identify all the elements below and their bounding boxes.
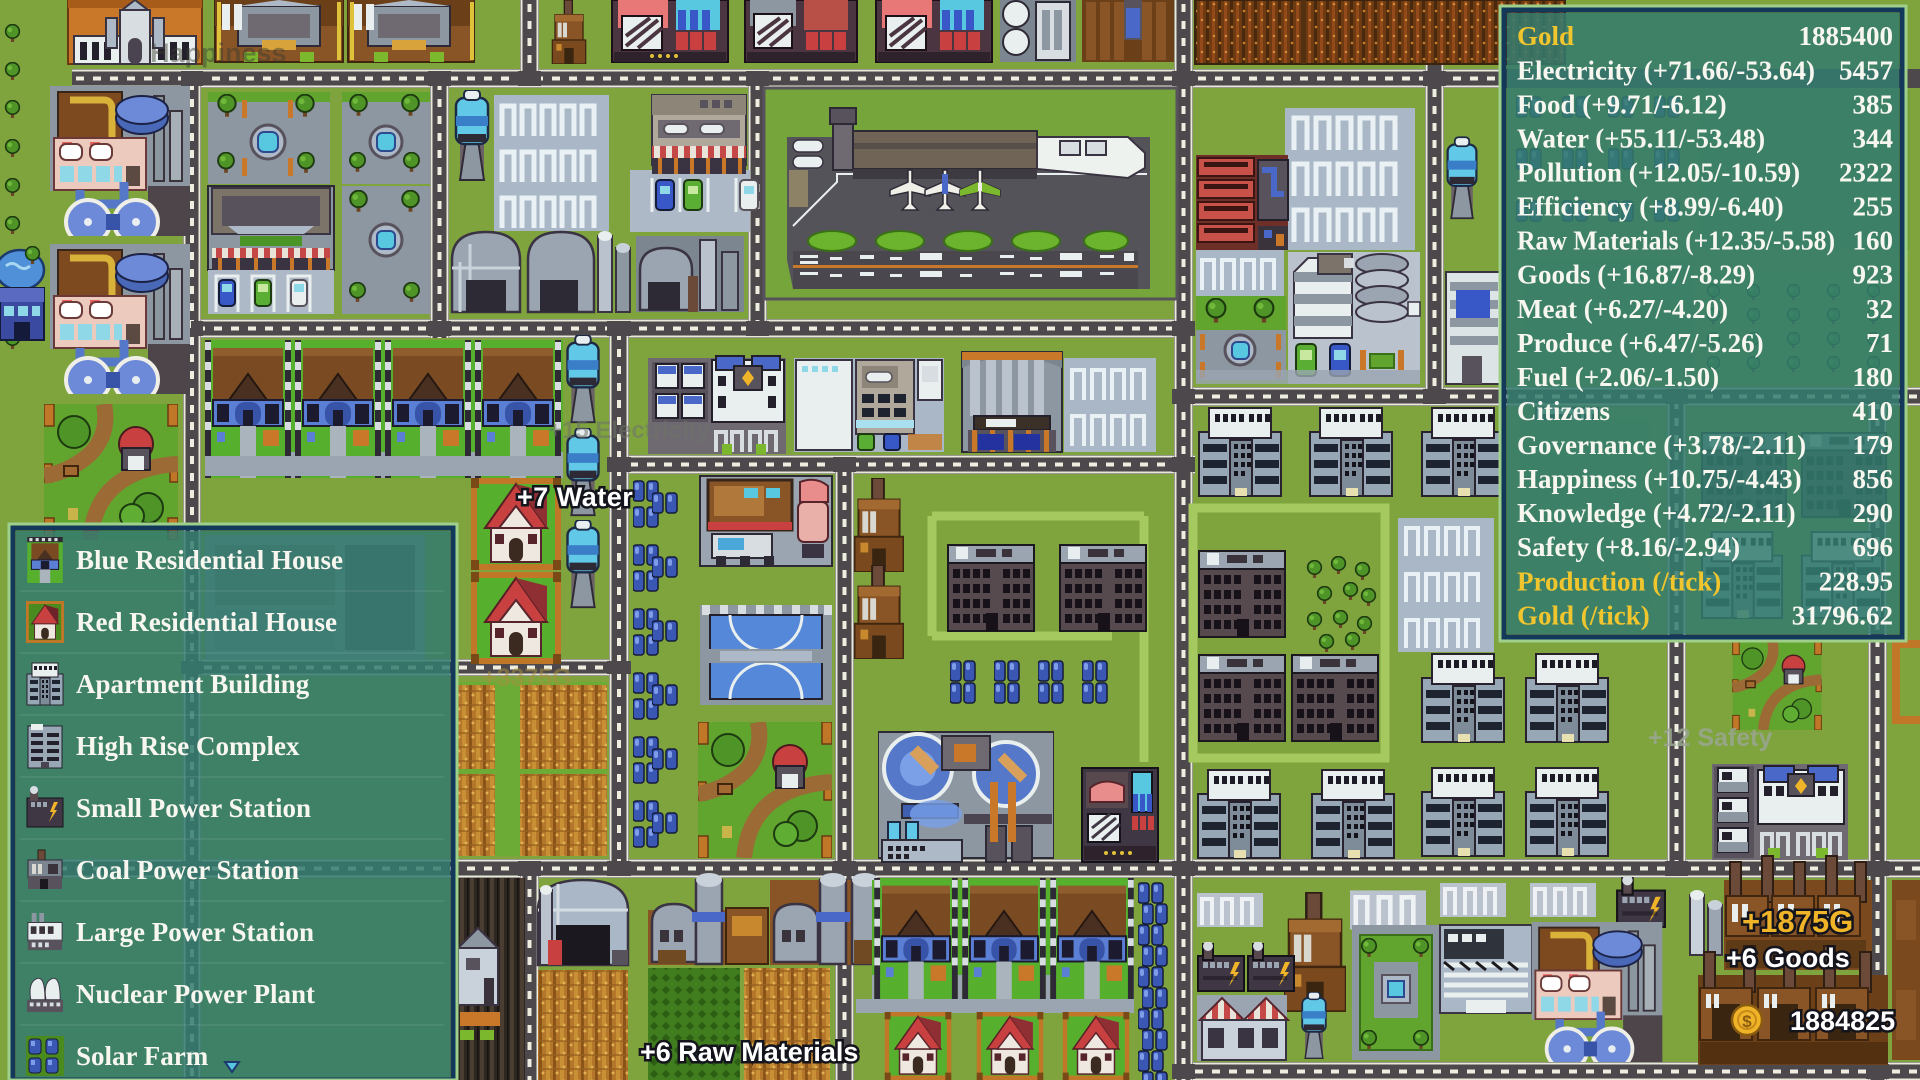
svg-text:Blue Residential House: Blue Residential House [76, 545, 343, 575]
svg-text:+15 Electricity: +15 Electricity [548, 417, 711, 444]
svg-text:Production (/tick): Production (/tick) [1517, 566, 1721, 596]
svg-text:Raw Materials (+12.35/-5.58): Raw Materials (+12.35/-5.58) [1517, 226, 1835, 256]
svg-text:5457: 5457 [1839, 55, 1893, 85]
svg-text:Water (+55.11/-53.48): Water (+55.11/-53.48) [1517, 123, 1765, 153]
svg-text:$: $ [1742, 1012, 1752, 1031]
svg-text:71: 71 [1866, 328, 1893, 358]
svg-text:Pollution (+12.05/-10.59): Pollution (+12.05/-10.59) [1517, 158, 1800, 188]
svg-text:160: 160 [1853, 226, 1894, 256]
svg-text:Efficiency (+8.99/-6.40): Efficiency (+8.99/-6.40) [1517, 192, 1784, 222]
svg-text:696: 696 [1853, 532, 1894, 562]
svg-text:2322: 2322 [1839, 158, 1893, 188]
svg-text:1885400: 1885400 [1799, 21, 1894, 51]
svg-text:Citizens: Citizens [1517, 396, 1610, 426]
svg-text:410: 410 [1853, 396, 1894, 426]
svg-text:255: 255 [1853, 192, 1894, 222]
svg-text:1884825: 1884825 [1790, 1006, 1895, 1036]
svg-text:Safety (+8.16/-2.94): Safety (+8.16/-2.94) [1517, 532, 1740, 562]
svg-text:Knowledge (+4.72/-2.11): Knowledge (+4.72/-2.11) [1517, 498, 1796, 528]
svg-text:Coal Power Station: Coal Power Station [76, 855, 299, 885]
svg-text:856: 856 [1853, 464, 1894, 494]
svg-text:+3375G: +3375G [482, 664, 572, 692]
svg-text:+7 Water: +7 Water [517, 482, 633, 512]
svg-text:Electricity (+71.66/-53.64): Electricity (+71.66/-53.64) [1517, 55, 1815, 85]
svg-text:290: 290 [1853, 498, 1894, 528]
svg-text:High Rise Complex: High Rise Complex [76, 731, 300, 761]
svg-text:Gold (/tick): Gold (/tick) [1517, 600, 1650, 630]
svg-text:+12 Safety: +12 Safety [1648, 724, 1772, 752]
svg-text:Fuel (+2.06/-1.50): Fuel (+2.06/-1.50) [1517, 362, 1719, 392]
svg-text:+6 Goods: +6 Goods [1726, 943, 1850, 973]
svg-text:228.95: 228.95 [1819, 566, 1893, 596]
svg-text:Meat (+6.27/-4.20): Meat (+6.27/-4.20) [1517, 294, 1728, 324]
svg-text:Solar Farm: Solar Farm [76, 1041, 209, 1071]
svg-text:Apartment Building: Apartment Building [76, 669, 310, 699]
svg-text:Happiness: Happiness [150, 38, 287, 68]
svg-text:Large Power Station: Large Power Station [76, 917, 314, 947]
svg-text:Goods (+16.87/-8.29): Goods (+16.87/-8.29) [1517, 260, 1755, 290]
svg-text:385: 385 [1853, 89, 1894, 119]
svg-text:Nuclear Power Plant: Nuclear Power Plant [76, 979, 315, 1009]
svg-text:32: 32 [1866, 294, 1893, 324]
svg-text:Gold: Gold [1517, 21, 1574, 51]
svg-text:344: 344 [1853, 123, 1894, 153]
svg-text:+6 Raw Materials: +6 Raw Materials [640, 1037, 858, 1067]
svg-text:+1875G: +1875G [1742, 904, 1853, 939]
svg-text:Happiness (+10.75/-4.43): Happiness (+10.75/-4.43) [1517, 464, 1802, 494]
svg-text:179: 179 [1853, 430, 1894, 460]
svg-text:Produce (+6.47/-5.26): Produce (+6.47/-5.26) [1517, 328, 1764, 358]
svg-text:31796.62: 31796.62 [1792, 600, 1893, 630]
svg-text:Small Power Station: Small Power Station [76, 793, 311, 823]
svg-text:Food (+9.71/-6.12): Food (+9.71/-6.12) [1517, 89, 1727, 119]
svg-text:180: 180 [1853, 362, 1894, 392]
svg-text:Red Residential House: Red Residential House [76, 607, 337, 637]
svg-text:923: 923 [1853, 260, 1894, 290]
svg-text:Governance (+3.78/-2.11): Governance (+3.78/-2.11) [1517, 430, 1806, 460]
